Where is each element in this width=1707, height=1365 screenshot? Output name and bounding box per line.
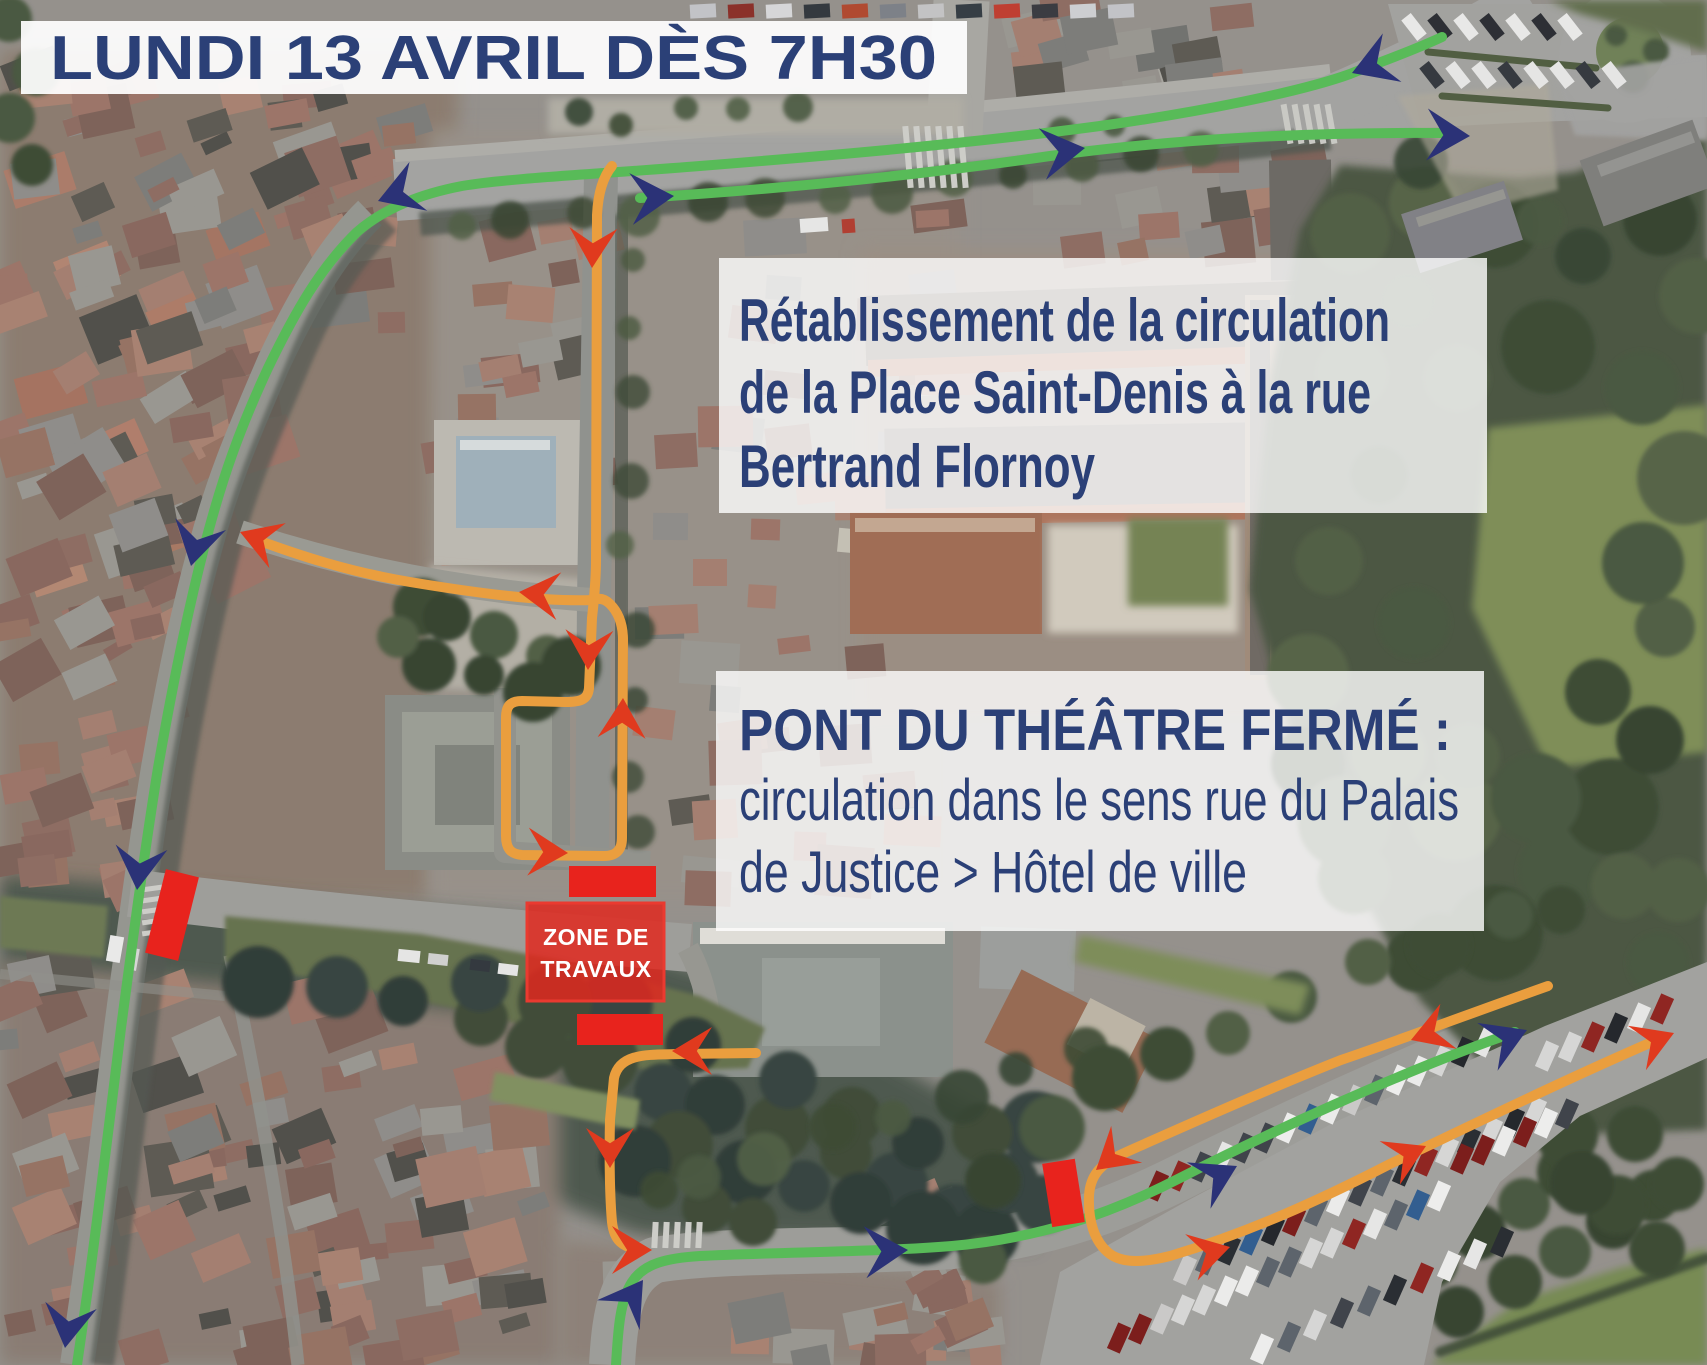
- svg-text:PONT DU THÉÂTRE FERMÉ :: PONT DU THÉÂTRE FERMÉ :: [739, 698, 1451, 763]
- svg-text:Rétablissement de la circulati: Rétablissement de la circulation: [739, 287, 1390, 354]
- svg-text:circulation dans le sens rue d: circulation dans le sens rue du Palais: [739, 768, 1459, 833]
- svg-text:ZONE DE: ZONE DE: [543, 924, 649, 950]
- svg-text:de la Place Saint-Denis à la r: de la Place Saint-Denis à la rue: [739, 359, 1371, 426]
- svg-text:de Justice > Hôtel de ville: de Justice > Hôtel de ville: [739, 840, 1247, 905]
- svg-text:TRAVAUX: TRAVAUX: [540, 956, 651, 982]
- svg-text:Bertrand Flornoy: Bertrand Flornoy: [739, 433, 1095, 500]
- svg-text:LUNDI 13 AVRIL DÈS 7H30: LUNDI 13 AVRIL DÈS 7H30: [50, 24, 937, 93]
